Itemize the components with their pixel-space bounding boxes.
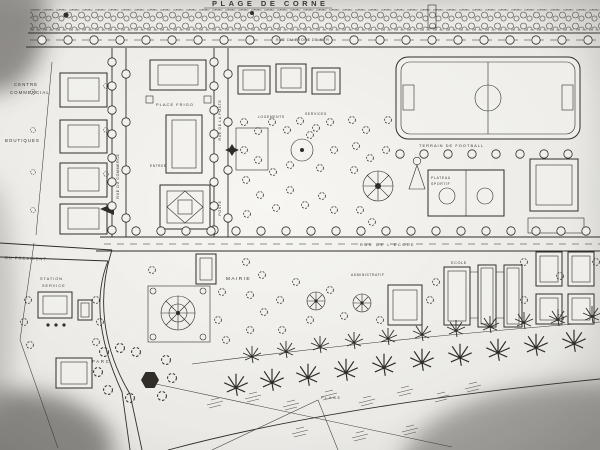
- photo-vignette: [0, 0, 600, 450]
- site-plan-drawing: PLAGE DE CORNE RUE DU FRONT DE MER CENTR…: [0, 0, 600, 450]
- site-plan-photo: PLAGE DE CORNE RUE DU FRONT DE MER CENTR…: [0, 0, 600, 450]
